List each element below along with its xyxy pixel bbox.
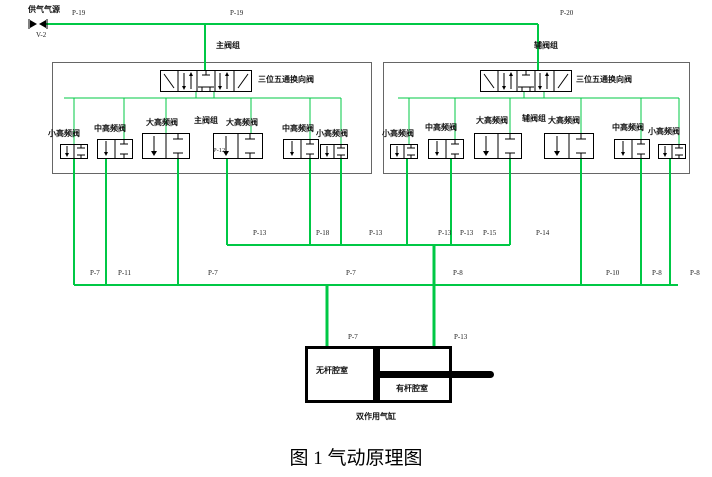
aux-group-inner-label: 辅阀组 [522,115,546,123]
figure-caption: 图 1 气动原理图 [0,443,712,470]
aux-large-hf-valve-right [544,133,594,159]
cylinder-name-label: 双作用气缸 [356,413,396,421]
low-bus-label-4: P-7 [346,270,356,277]
mid-bus-label-6: P-15 [483,230,496,237]
cylinder-port-right-label: P-13 [454,334,467,341]
pneumatic-schematic: 供气气源 V-2 P-19 P-19 P-20 主阀组 辅阀组 三位五通换向阀 … [0,0,712,477]
rodless-chamber-label: 无杆腔室 [316,367,348,375]
supply-id-label: V-2 [36,32,46,39]
aux-valve-label-6: 小高频阀 [648,128,680,136]
aux-small-hf-valve-right [658,144,686,159]
low-bus-label-3: P-7 [208,270,218,277]
port-label-p20: P-20 [560,10,573,17]
rod-chamber-label: 有杆腔室 [396,385,428,393]
main-small-hf-valve-right [320,144,348,159]
cylinder-rod [380,371,494,378]
aux-valve-label-1: 小高频阀 [382,130,414,138]
main-valve-label-3: 大高频阀 [146,119,178,127]
main-valve-label-6: 小高频阀 [316,130,348,138]
main-valve-label-2: 中高频阀 [94,125,126,133]
aux-mid-hf-valve-right [614,139,650,159]
mid-bus-label-4: P-13 [438,230,451,237]
mid-bus-label-3: P-13 [369,230,382,237]
aux-large-hf-valve-left [474,133,522,159]
air-source-valve-icon [28,19,48,29]
main-dir-valve-label: 三位五通换向阀 [258,76,314,84]
low-bus-label-6: P-10 [606,270,619,277]
aux-valve-label-4: 大高频阀 [548,117,580,125]
main-mid-hf-valve-left [97,139,133,159]
port-label-p19b: P-19 [230,10,243,17]
main-group-title: 主阀组 [216,42,240,50]
main-group-inner-label: 主阀组 [194,117,218,125]
main-large-hf-valve-left [142,133,190,159]
aux-directional-valve [480,70,572,92]
main-large-hf-valve-right [213,133,263,159]
low-bus-label-7: P-8 [652,270,662,277]
low-bus-label-5: P-8 [453,270,463,277]
port-label-p19a: P-19 [72,10,85,17]
main-mid-hf-valve-right [283,139,319,159]
piping-lines [0,0,712,477]
main-directional-valve [160,70,252,92]
aux-valve-label-2: 中高频阀 [425,124,457,132]
aux-valve-label-3: 大高频阀 [476,117,508,125]
cylinder-piston [373,346,380,403]
port-label-p12: P-12 [213,148,225,155]
aux-group-title: 辅阀组 [534,42,558,50]
low-bus-label-2: P-11 [118,270,131,277]
mid-bus-label-7: P-14 [536,230,549,237]
aux-mid-hf-valve-left [428,139,464,159]
supply-label: 供气气源 [28,6,60,14]
aux-small-hf-valve-left [390,144,418,159]
main-valve-label-5: 中高频阀 [282,125,314,133]
main-small-hf-valve-left [60,144,88,159]
low-bus-label-8: P-8 [690,270,700,277]
main-valve-label-1: 小高频阀 [48,130,80,138]
aux-valve-label-5: 中高频阀 [612,124,644,132]
mid-bus-label-5: P-13 [460,230,473,237]
aux-dir-valve-label: 三位五通换向阀 [576,76,632,84]
cylinder-port-left-label: P-7 [348,334,358,341]
mid-bus-label-2: P-18 [316,230,329,237]
low-bus-label-1: P-7 [90,270,100,277]
main-valve-label-4: 大高频阀 [226,119,258,127]
mid-bus-label-1: P-13 [253,230,266,237]
